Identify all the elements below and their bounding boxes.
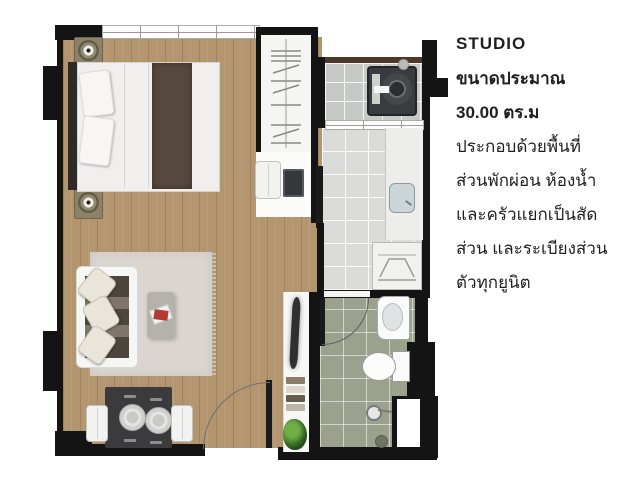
wall-left-column-top [43,66,63,120]
towel [286,395,305,402]
lamp-icon [78,192,99,213]
washing-machine [367,66,417,116]
wardrobe-hangers-icon [261,35,311,152]
service-shaft [397,399,420,448]
lamp-icon [78,40,99,61]
bedroom-window [102,25,260,39]
towel [286,377,305,384]
wall-bath-east-lower [407,342,435,398]
bathroom-sink [377,296,410,340]
kitchen-door-leaf [316,166,323,228]
wall-bath-east-upper [415,294,428,342]
magazine [153,309,168,321]
plant-icon [283,419,307,450]
sofa [76,266,138,368]
bed-sheet-fold [148,64,149,188]
screenshot-root: STUDIO ขนาดประมาณ 30.00 ตร.ม ประกอบด้วยพ… [0,0,640,480]
wall-top-right-corner [422,40,437,97]
shower-head-icon [366,405,382,421]
sink-bowl [382,303,403,331]
balcony-drain [398,59,409,70]
bed-headboard [68,62,77,190]
wall-living-kitchen [317,223,324,298]
stove-icon [373,243,421,289]
kitchen-sink [389,183,415,213]
desk-chair [255,161,281,199]
towel [286,404,305,411]
bathroom-doorway-opening [324,291,370,297]
description-line: ตัวทุกยูนิต [456,265,640,299]
bed-sheet-fold [124,64,125,188]
info-panel: STUDIO ขนาดประมาณ 30.00 ตร.ม ประกอบด้วยพ… [456,27,640,299]
toilet [362,352,396,381]
washer-detergent-slot [374,86,389,93]
wall-right-column [437,78,448,97]
bed-pillow [78,69,114,117]
shower-drain [375,435,388,448]
plate-icon [119,404,146,431]
wall-balcony-kitchen-nub [318,120,325,128]
bed-runner [152,63,192,189]
cutlery-icon [124,395,136,398]
stove-counter [372,242,422,290]
description-line: และครัวแยกเป็นสัด [456,197,640,231]
size-value: 30.00 ตร.ม [456,95,640,129]
coffee-table [147,292,174,338]
dining-chair-right [171,405,193,442]
description-line: ส่วน และระเบียงส่วน [456,231,640,265]
wall-left-column-bottom [43,331,63,391]
wall-bath-west [308,292,320,458]
rug-fringe [212,253,216,375]
unit-type-title: STUDIO [456,27,640,61]
cutlery-icon [124,439,136,442]
description-line: ส่วนพักผ่อน ห้องน้ำ [456,163,640,197]
bed-pillow [78,115,115,166]
nightstand-top [74,37,103,65]
floorplan [0,0,450,480]
cutlery-icon [150,398,162,401]
description-line: ประกอบด้วยพื้นที่ [456,129,640,163]
towel-stack [286,377,305,415]
size-label: ขนาดประมาณ [456,61,640,95]
computer-monitor [283,169,304,197]
wardrobe [256,27,318,152]
plate-icon [145,407,172,434]
faucet-icon [405,200,412,206]
dining-chair-left [86,405,108,442]
towel [286,386,305,393]
cutlery-icon [150,441,162,444]
